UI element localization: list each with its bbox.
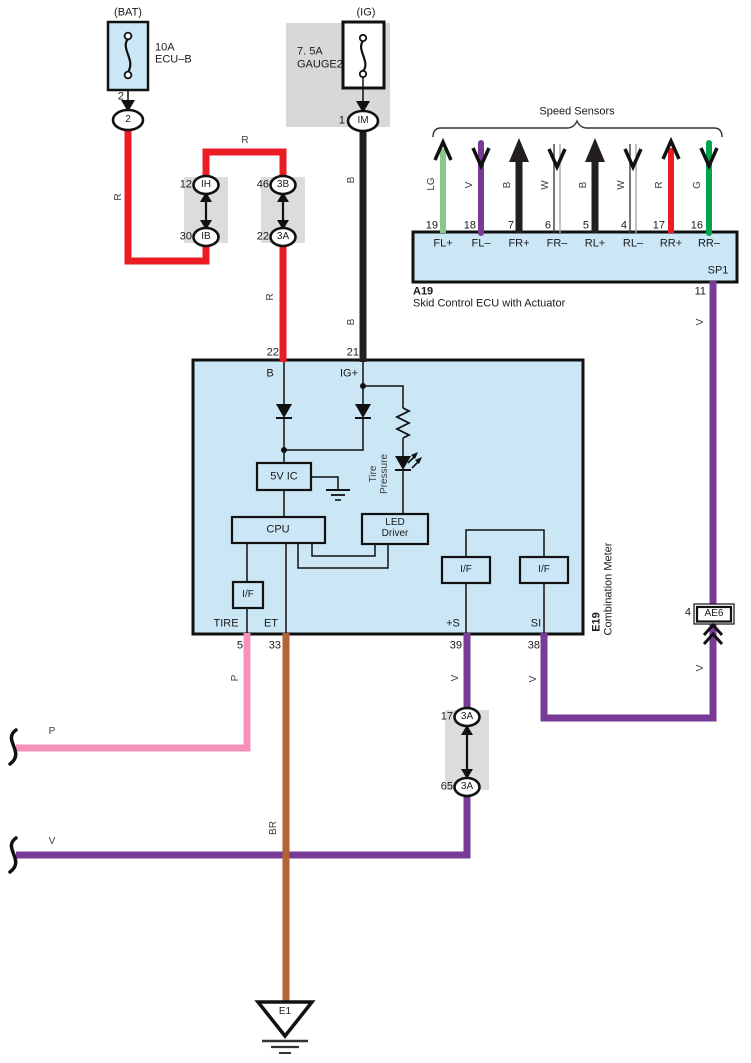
junction-3a-top-label: 3A xyxy=(461,712,473,722)
junction-ih-bottom-label: IB xyxy=(201,232,210,242)
block-if-label: I/F xyxy=(538,565,550,575)
block-driver-label: Driver xyxy=(382,529,409,539)
junction-3b-top-pin: 46 xyxy=(257,180,269,191)
sensor-wire-color: W xyxy=(541,180,551,189)
sensor-wire-fr-minus xyxy=(549,144,565,233)
sensor-wire-rl-minus xyxy=(625,144,641,233)
ig-header: (IG) xyxy=(357,8,376,19)
wire-color-r: R xyxy=(241,136,248,146)
bat-header: (BAT) xyxy=(114,8,142,19)
sensor-pin: 4 xyxy=(621,221,627,232)
sensor-wire-color: V xyxy=(465,182,475,189)
sensor-pin: 19 xyxy=(426,221,438,232)
block-if-label: I/F xyxy=(460,565,472,575)
sensor-pin: 5 xyxy=(583,221,589,232)
ae6-label: AE6 xyxy=(705,609,724,619)
ecu-terminal: FL+ xyxy=(433,239,452,250)
ig-pin: 1 xyxy=(339,116,345,127)
block-led-label: LED xyxy=(385,518,404,528)
sensor-pin: 6 xyxy=(545,221,551,232)
junction-ih-bottom-pin: 30 xyxy=(180,232,192,243)
meter-pin-tire: 5 xyxy=(237,641,243,652)
block-5v-ic-label: 5V IC xyxy=(270,472,298,483)
ecu-sp1-label: SP1 xyxy=(708,266,729,277)
meter-name: Combination Meter xyxy=(604,543,615,636)
junction-3b-bottom-label: 3A xyxy=(277,232,289,242)
junction-3b-bottom-pin: 22 xyxy=(257,232,269,243)
meter-id: E19 xyxy=(592,612,603,632)
wire-color-r: R xyxy=(266,293,276,300)
meter-pin-b: 22 xyxy=(267,348,279,359)
ig-fuse-name: GAUGE2 xyxy=(297,60,343,71)
ecu-name: Skid Control ECU with Actuator xyxy=(413,299,565,310)
junction-dot xyxy=(281,447,287,453)
wire-color-v: V xyxy=(529,676,539,683)
speed-sensors-brace-icon xyxy=(433,121,722,137)
wiring-diagram: (BAT) 10A ECU–B 2 2 (IG) 7. 5A GAUGE2 1 … xyxy=(0,0,751,1063)
sensor-wire-color: R xyxy=(655,181,665,188)
sensor-wire-rr-plus xyxy=(663,141,679,233)
ig-connector-label: IM xyxy=(357,116,368,126)
meter-terminal-ig: IG+ xyxy=(340,369,358,380)
junction-dot xyxy=(360,383,366,389)
sensor-pin: 16 xyxy=(691,221,703,232)
wire-color-v: V xyxy=(696,319,706,326)
sensor-wire-color: G xyxy=(693,181,703,189)
ecu-terminal: RR– xyxy=(698,239,720,250)
wire-color-p: P xyxy=(49,727,56,737)
ecu-id: A19 xyxy=(413,287,433,298)
led-label-pressure: Pressure xyxy=(380,454,390,494)
purple-wire-continuation-icon xyxy=(10,838,16,872)
meter-pin-ig: 21 xyxy=(347,348,359,359)
meter-terminal-tire: TIRE xyxy=(213,619,238,630)
wire-color-v: V xyxy=(696,665,706,672)
meter-pin-et: 33 xyxy=(269,641,281,652)
skid-ecu-box xyxy=(413,232,737,282)
meter-terminal-b: B xyxy=(266,369,273,380)
meter-terminal-s: +S xyxy=(446,619,460,630)
junction-ih-top-label: IH xyxy=(201,180,211,190)
led-label-tire: Tire xyxy=(369,466,379,483)
speed-sensors-title: Speed Sensors xyxy=(539,107,614,118)
wire-color-p: P xyxy=(231,675,241,682)
bat-fuse-rating: 10A xyxy=(155,43,175,54)
wire-color-v: V xyxy=(451,675,461,682)
diagram-graphics xyxy=(0,0,751,1063)
pink-wire-continuation-icon xyxy=(10,730,16,764)
purple-plus-s-wire xyxy=(16,633,467,855)
ae6-pin: 4 xyxy=(685,608,691,619)
sensor-wire-color: LG xyxy=(427,177,437,190)
sensor-wire-color: W xyxy=(617,180,627,189)
junction-3b-top-label: 3B xyxy=(277,180,289,190)
junction-3a-top-pin: 17 xyxy=(441,712,453,723)
wire-color-v: V xyxy=(49,837,56,847)
bat-pin: 2 xyxy=(118,92,124,103)
wire-color-b: B xyxy=(347,177,357,184)
ecu-terminal: RR+ xyxy=(660,239,682,250)
ecu-terminal: RL– xyxy=(623,239,643,250)
meter-terminal-si: SI xyxy=(531,619,541,630)
junction-ih-top-pin: 12 xyxy=(180,180,192,191)
ecu-terminal: FR– xyxy=(547,239,568,250)
meter-pin-si: 38 xyxy=(528,641,540,652)
sensor-wire-rr-minus xyxy=(701,143,717,233)
junction-3a-bottom-pin: 65 xyxy=(441,782,453,793)
bat-fuse-name: ECU–B xyxy=(155,55,192,66)
junction-3a-bottom-label: 3A xyxy=(461,782,473,792)
meter-pin-s: 39 xyxy=(450,641,462,652)
ecu-terminal: FR+ xyxy=(508,239,529,250)
sensor-pin: 18 xyxy=(464,221,476,232)
wire-color-r: R xyxy=(114,193,124,200)
wire-color-b: B xyxy=(347,319,357,326)
sensor-pin: 17 xyxy=(653,221,665,232)
sensor-pin: 7 xyxy=(508,221,514,232)
ecu-terminal: FL– xyxy=(472,239,491,250)
wire-color-br: BR xyxy=(269,821,279,835)
block-if-label: I/F xyxy=(242,590,254,600)
block-cpu-label: CPU xyxy=(266,525,289,536)
meter-terminal-et: ET xyxy=(264,619,278,630)
bat-connector-label: 2 xyxy=(125,115,131,125)
ground-label: E1 xyxy=(279,1007,291,1017)
ecu-terminal: RL+ xyxy=(585,239,606,250)
ecu-output-pin: 11 xyxy=(695,287,706,298)
sensor-wire-color: B xyxy=(503,182,513,189)
sensor-wire-color: B xyxy=(579,182,589,189)
ig-fuse-rating: 7. 5A xyxy=(297,47,323,58)
